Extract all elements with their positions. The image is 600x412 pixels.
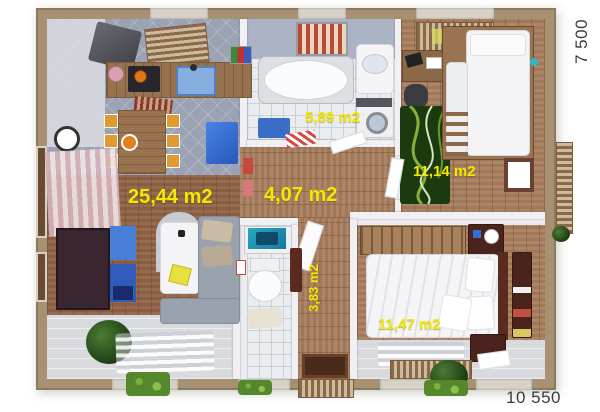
wall-hook bbox=[530, 58, 538, 66]
cushion bbox=[201, 245, 233, 268]
bush bbox=[552, 226, 570, 242]
hallway-floor bbox=[240, 147, 395, 218]
wall-clock bbox=[54, 126, 80, 152]
interior-wall bbox=[350, 212, 545, 219]
area-label-hallway: 4,07 m2 bbox=[264, 184, 337, 207]
remote bbox=[178, 230, 185, 237]
area-label-kids: 11,14 m2 bbox=[413, 163, 476, 180]
interior-wall bbox=[247, 140, 395, 147]
wall-dispenser bbox=[236, 260, 246, 275]
picture-frame bbox=[504, 158, 534, 192]
desk-chair bbox=[404, 84, 428, 108]
interior-wall bbox=[350, 219, 357, 379]
toilet bbox=[248, 270, 282, 302]
area-label-bedroom: 11,47 m2 bbox=[378, 316, 441, 333]
area-label-wc: 3,83 m2 bbox=[306, 264, 321, 312]
fruit-bowl bbox=[121, 134, 138, 151]
radiator bbox=[296, 22, 348, 56]
pan bbox=[134, 70, 147, 83]
bathtub-basin bbox=[264, 60, 348, 100]
lamp bbox=[484, 229, 499, 244]
window bbox=[298, 8, 346, 19]
living-rug bbox=[115, 330, 214, 373]
tv bbox=[56, 228, 110, 310]
wall-decor bbox=[243, 180, 253, 196]
window bbox=[36, 252, 47, 302]
faucet bbox=[190, 64, 197, 71]
grass-patch bbox=[424, 380, 468, 396]
cabinet-blue bbox=[206, 122, 238, 164]
area-label-bathroom: 5,89 m2 bbox=[305, 109, 360, 126]
chair bbox=[104, 114, 118, 128]
wall-shelf bbox=[512, 252, 532, 338]
bed-pillow bbox=[470, 34, 526, 56]
sofa-chaise bbox=[160, 298, 240, 324]
wardrobe bbox=[360, 226, 466, 255]
headboard bbox=[498, 252, 508, 340]
chair bbox=[104, 134, 118, 148]
entry-step bbox=[298, 379, 354, 398]
basin-bowl bbox=[256, 232, 278, 245]
interior-wall bbox=[240, 218, 298, 225]
grass-patch bbox=[126, 372, 170, 396]
bath-mat bbox=[247, 307, 282, 329]
doormat bbox=[238, 380, 272, 395]
side-deck bbox=[556, 142, 573, 234]
chair bbox=[166, 154, 180, 168]
window bbox=[150, 8, 208, 19]
bowl bbox=[108, 66, 124, 82]
tv-shelf-upper bbox=[110, 226, 136, 260]
phone bbox=[473, 230, 481, 238]
shelf-items bbox=[230, 46, 252, 64]
kitchen-sink bbox=[176, 66, 216, 96]
washer-panel bbox=[356, 98, 392, 107]
window bbox=[416, 8, 494, 19]
chair bbox=[166, 114, 180, 128]
bed-ladder bbox=[444, 110, 468, 156]
cushion bbox=[201, 219, 233, 243]
chair bbox=[166, 134, 180, 148]
area-label-living: 25,44 m2 bbox=[128, 186, 213, 209]
corridor-cabinet bbox=[290, 248, 302, 292]
pillow bbox=[464, 257, 495, 294]
washer-door bbox=[366, 112, 388, 134]
pillow bbox=[437, 294, 472, 333]
book bbox=[426, 57, 442, 69]
floor-plan-render: 25,44 m2 4,07 m2 5,89 m2 11,14 m2 3,83 m… bbox=[0, 0, 600, 412]
entry-door bbox=[302, 354, 348, 378]
dimension-bottom: 10 550 bbox=[506, 388, 561, 408]
basin-bowl bbox=[362, 54, 388, 74]
curtain-rug bbox=[45, 148, 121, 237]
media-box bbox=[113, 286, 133, 300]
dimension-right: 7 500 bbox=[572, 19, 592, 64]
wall-decor bbox=[243, 158, 253, 174]
